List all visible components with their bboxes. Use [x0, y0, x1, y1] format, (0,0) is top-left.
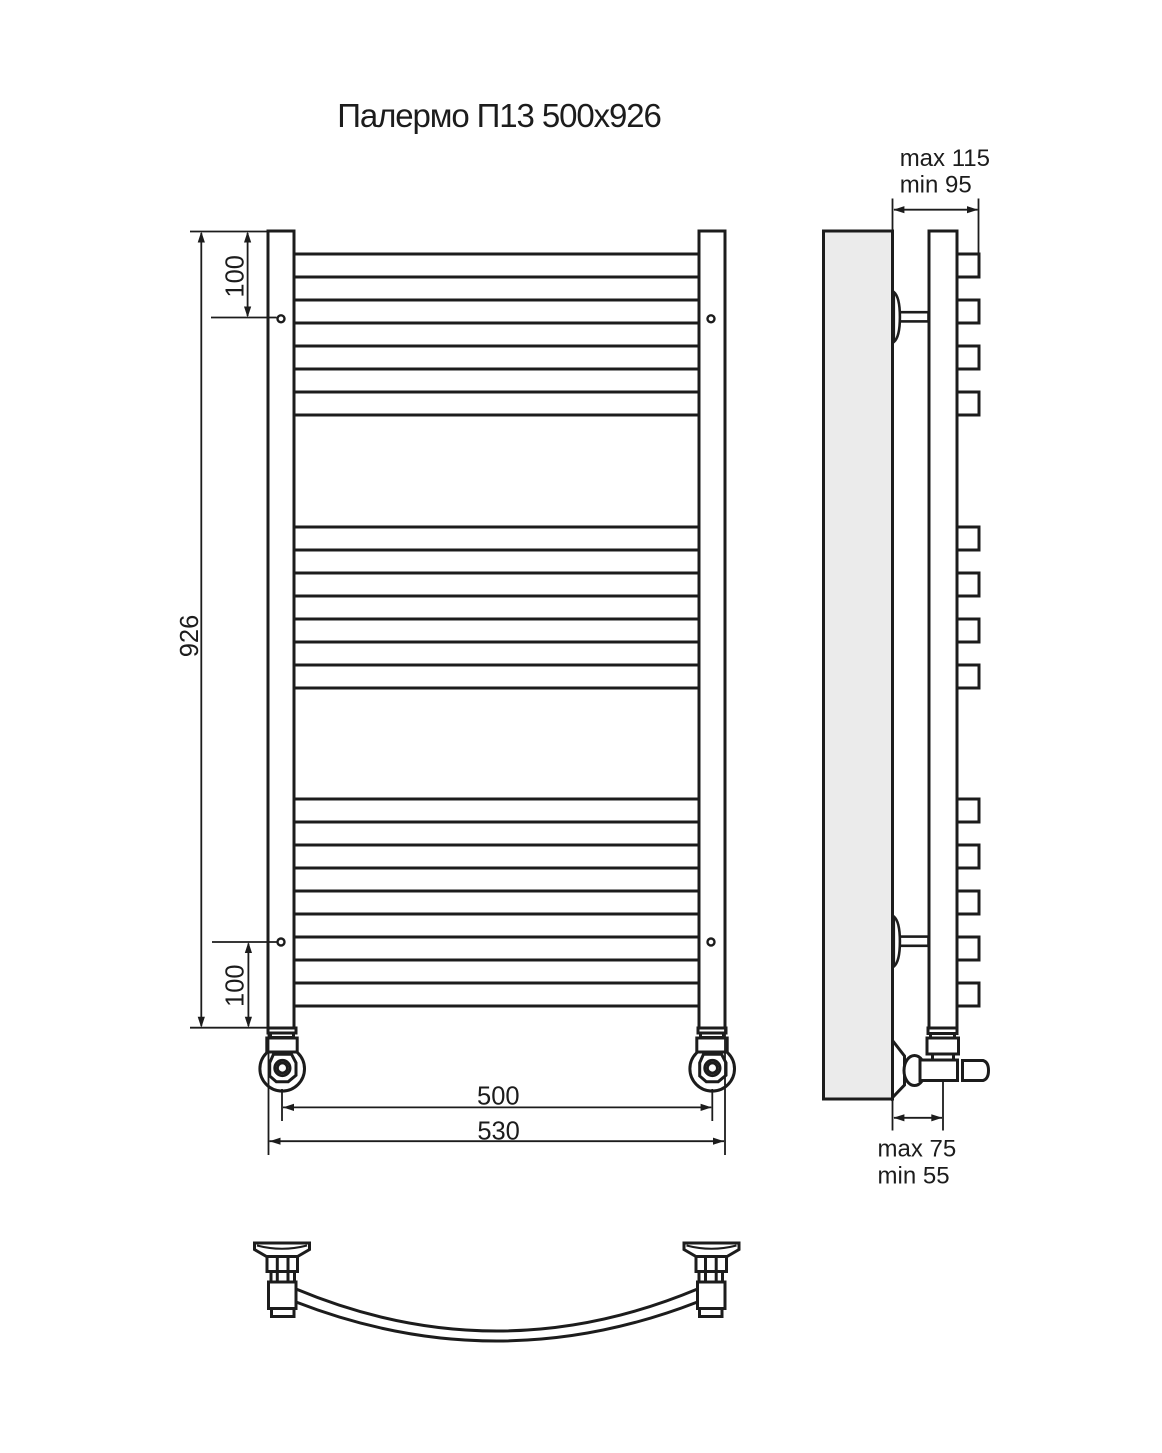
svg-text:926: 926 [176, 615, 204, 658]
svg-text:100: 100 [221, 255, 249, 298]
svg-text:Палермо П13 500x926: Палермо П13 500x926 [337, 97, 661, 134]
svg-text:min 95: min 95 [900, 172, 972, 199]
svg-text:100: 100 [222, 964, 250, 1007]
svg-text:max 75: max 75 [878, 1136, 957, 1163]
svg-text:max 115: max 115 [900, 145, 990, 172]
svg-text:530: 530 [477, 1118, 520, 1146]
svg-text:min 55: min 55 [878, 1163, 950, 1190]
svg-text:500: 500 [477, 1082, 520, 1110]
